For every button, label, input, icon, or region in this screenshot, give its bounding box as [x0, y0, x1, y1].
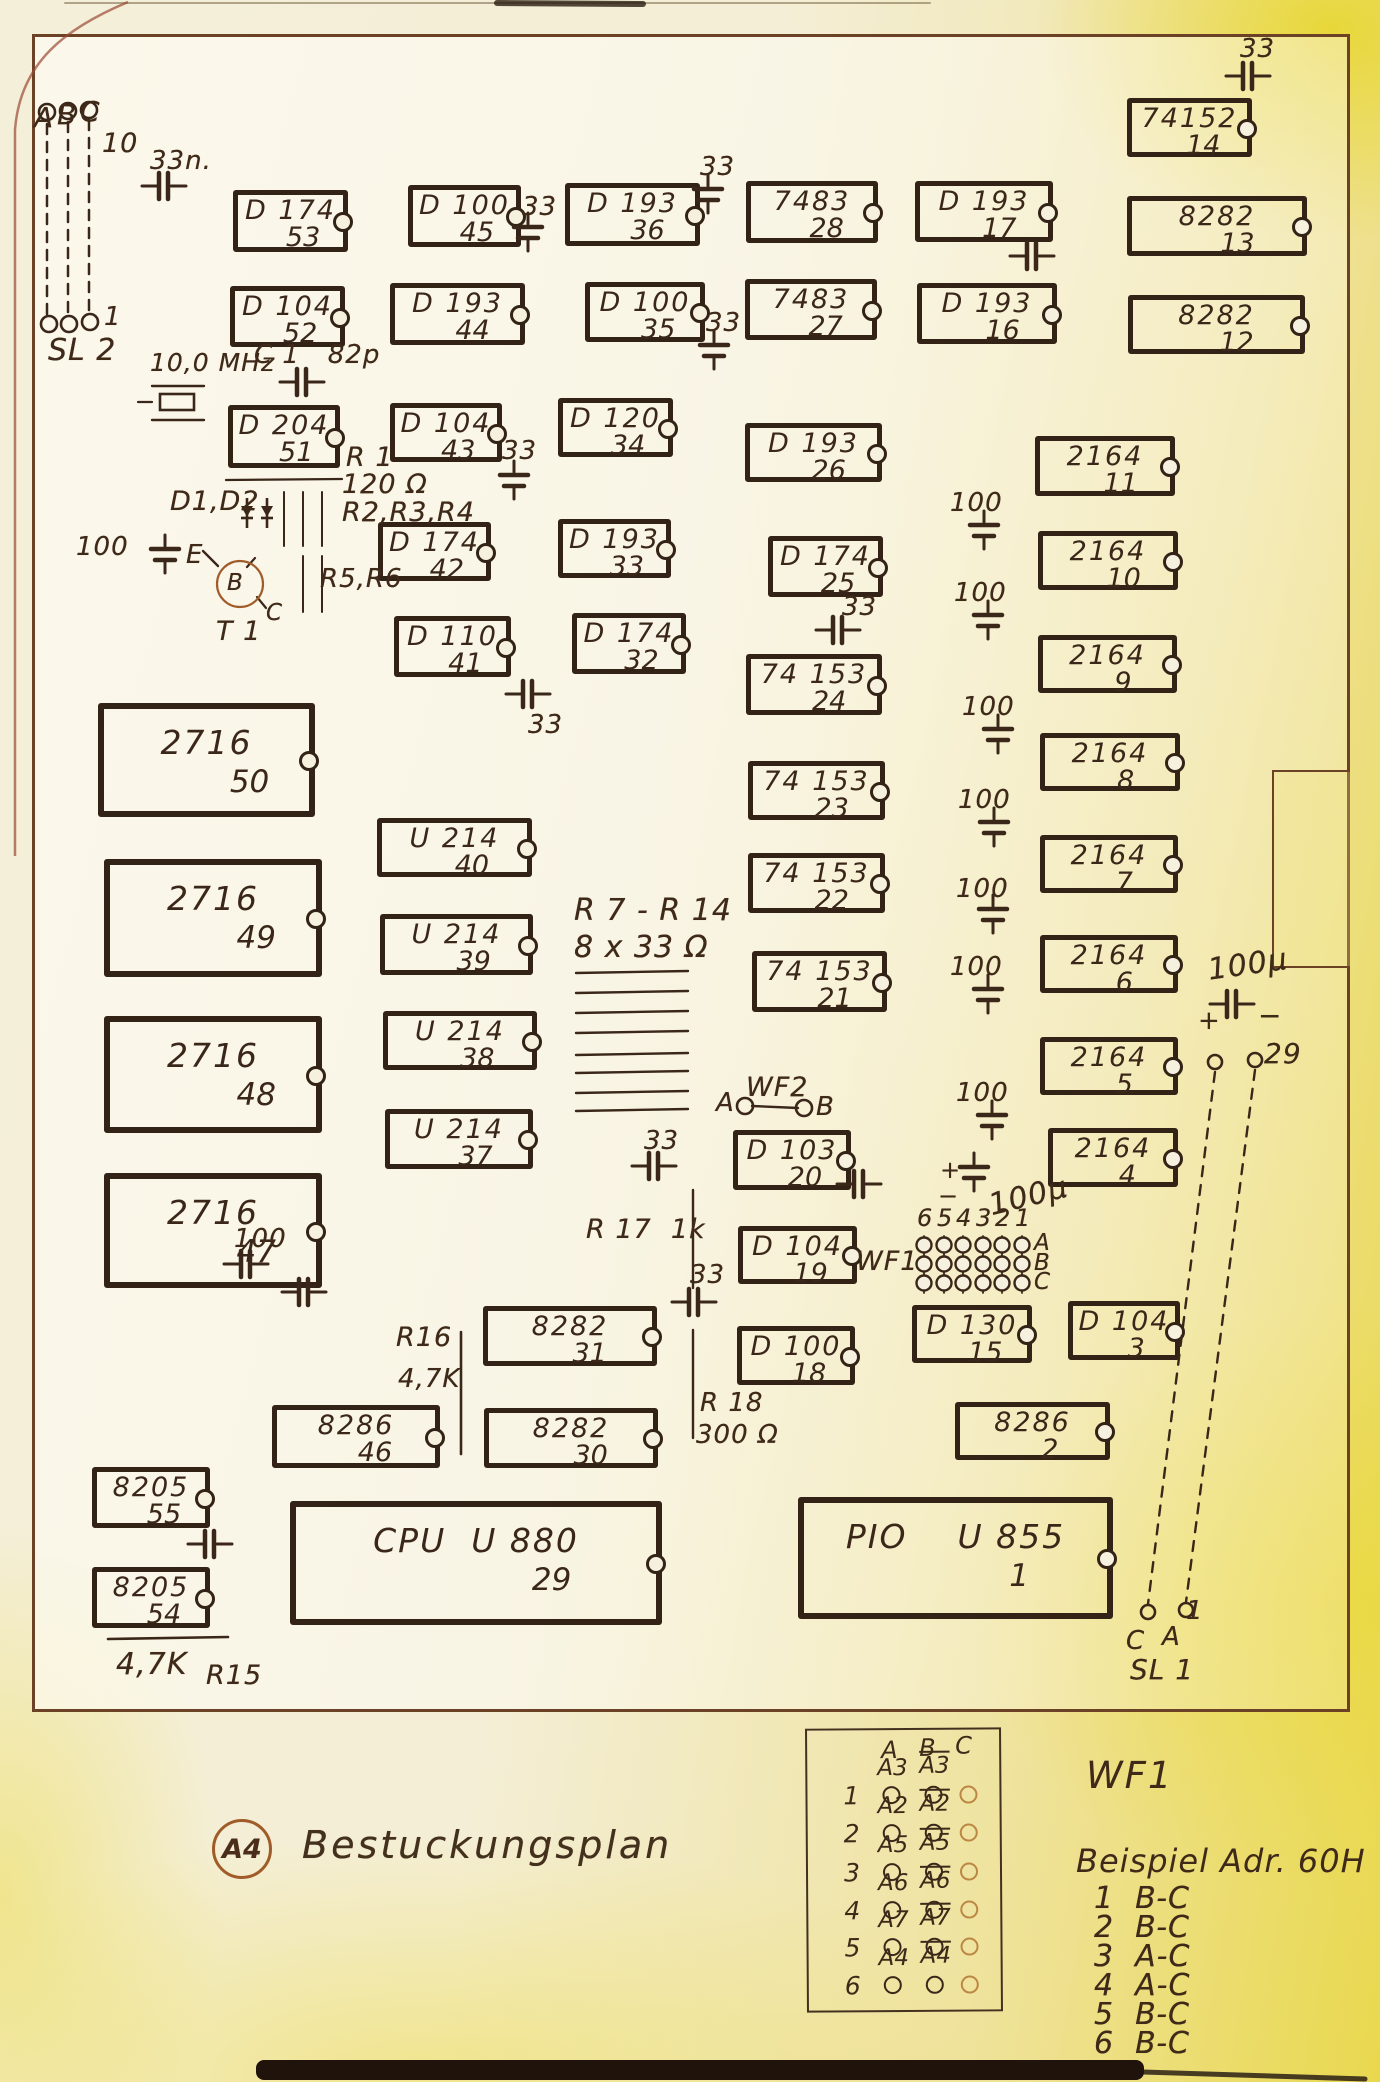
- ic-position-number: 51: [233, 439, 335, 466]
- ic-position-number: 28: [751, 215, 873, 242]
- ic-position-number: 27: [750, 313, 872, 340]
- pin1-notch-icon: [1038, 203, 1058, 223]
- pin1-notch-icon: [195, 1589, 215, 1609]
- wf1-column-digit: 6: [917, 1206, 933, 1230]
- legend-row-number: 5: [844, 1935, 860, 1960]
- ic-position-number: 9: [1043, 669, 1172, 696]
- capacitor-value-label: 100: [962, 694, 1015, 720]
- pin1-notch-icon: [872, 973, 892, 993]
- ic-2164-11: 216411: [1035, 436, 1175, 496]
- wf1-column-digit: 3: [976, 1206, 992, 1230]
- ic-type-label: 2164: [1043, 641, 1172, 671]
- pin1-notch-icon: [476, 543, 496, 563]
- pin1-notch-icon: [1165, 753, 1185, 773]
- ic-D104-52: D 10452: [230, 286, 345, 347]
- ic-position-number: 8: [1045, 767, 1175, 794]
- ic-position-number: 22: [753, 887, 880, 914]
- legend-row-number: 6: [845, 1973, 861, 1998]
- handwritten-label: 100: [76, 534, 129, 560]
- wf1-column-digit: 2: [995, 1206, 1011, 1230]
- pin1-notch-icon: [656, 540, 676, 560]
- legend-signal-label-inverted: A3: [919, 1755, 950, 1778]
- ic-8282-12: 828212: [1128, 295, 1305, 354]
- legend-signal-label-inverted: A7: [920, 1907, 951, 1930]
- legend-signal-label: A5: [878, 1834, 909, 1857]
- ic-position-number: 14: [1132, 132, 1247, 159]
- ic-position-number: 21: [757, 985, 882, 1012]
- wf1-column-digit: 4: [956, 1206, 972, 1230]
- handwritten-label: 1: [1186, 1598, 1204, 1624]
- ic-type-label: 8282: [1133, 301, 1300, 331]
- ic-2164-7: 21647: [1040, 835, 1178, 893]
- pcb-edge-notch: [1272, 770, 1350, 968]
- ic-type-label: 8282: [1132, 202, 1302, 232]
- pin1-notch-icon: [510, 305, 530, 325]
- legend-jumper-pad-icon: [960, 1900, 978, 1918]
- ic-D100-35: D 10035: [585, 282, 705, 342]
- ic-position-number: 3: [1073, 1335, 1175, 1362]
- handwritten-label: R 1: [346, 444, 394, 471]
- pin1-notch-icon: [1097, 1549, 1117, 1569]
- pin1-notch-icon: [658, 419, 678, 439]
- sheet-format-stamp: A4: [212, 1819, 272, 1879]
- handwritten-label: 1: [104, 304, 122, 330]
- ic-type-label: 2716: [104, 725, 309, 761]
- pin1-notch-icon: [868, 558, 888, 578]
- ic-7483-28: 748328: [746, 181, 878, 243]
- pin1-notch-icon: [870, 874, 890, 894]
- pin1-notch-icon: [671, 635, 691, 655]
- legend-signal-label: A7: [878, 1909, 909, 1932]
- ic-2164-5: 21645: [1040, 1037, 1178, 1095]
- pin1-notch-icon: [685, 206, 705, 226]
- ic-position-number: 4: [1053, 1162, 1173, 1189]
- handwritten-label: E: [186, 542, 203, 568]
- ic-position-number: 44: [395, 317, 520, 344]
- pin1-notch-icon: [1162, 655, 1182, 675]
- ic-position-number: 36: [570, 217, 695, 244]
- handwritten-label: R 18: [700, 1390, 763, 1416]
- sheet-format-label: A4: [222, 1834, 262, 1865]
- handwritten-label: 120 Ω: [342, 471, 428, 498]
- ic-D104-43: D 10443: [390, 403, 502, 462]
- capacitor-value-label: 33: [1240, 36, 1275, 62]
- ic-74152-14: 7415214: [1127, 98, 1252, 157]
- handwritten-label: +: [1198, 1008, 1221, 1034]
- pin1-notch-icon: [1160, 457, 1180, 477]
- pin1-notch-icon: [518, 1130, 538, 1150]
- ic-position-number: 18: [742, 1360, 850, 1387]
- ic-position-number: 2: [960, 1436, 1105, 1463]
- ic-2716-47: 271647: [104, 1173, 322, 1288]
- ic-8286-2: 82862: [955, 1402, 1110, 1460]
- handwritten-label: 29: [1264, 1040, 1302, 1068]
- ic-D104-3: D 1043: [1068, 1301, 1180, 1360]
- ic-U214-40: U 21440: [377, 818, 532, 877]
- handwritten-label: R2,R3,R4: [342, 499, 475, 526]
- handwritten-label: 8 x 33 Ω: [574, 933, 709, 963]
- legend-row-number: 4: [844, 1898, 860, 1923]
- wf1-legend-title: WF1: [1086, 1754, 1173, 1797]
- ic-position-number: 20: [738, 1164, 846, 1191]
- ic-type-label: 2716: [110, 881, 316, 917]
- handwritten-label: 4,7K: [398, 1366, 460, 1392]
- ic-type-label: 8282: [488, 1312, 652, 1342]
- handwritten-label: A: [716, 1090, 735, 1116]
- ic-position-number: 43: [395, 437, 497, 464]
- capacitor-value-label: 100: [956, 876, 1009, 902]
- pin1-notch-icon: [1163, 855, 1183, 875]
- ic-type-label: 8282: [489, 1414, 653, 1444]
- pin1-notch-icon: [643, 1429, 663, 1449]
- ic-position-number: 31: [488, 1340, 652, 1367]
- ic-8205-55: 820555: [92, 1467, 210, 1528]
- pin1-notch-icon: [1163, 1057, 1183, 1077]
- ic-D193-33: D 19333: [558, 519, 671, 578]
- ic-2716-50: 271650: [98, 703, 315, 817]
- handwritten-label: 10: [102, 130, 138, 157]
- legend-signal-label: A4: [879, 1947, 910, 1970]
- ic-type-label: D 104: [1073, 1307, 1175, 1337]
- ic-D174-53: D 17453: [233, 190, 348, 252]
- ic-position-number: 32: [577, 647, 681, 674]
- ic-type-label: 8286: [960, 1408, 1105, 1438]
- ic-2164-6: 21646: [1040, 935, 1178, 993]
- legend-jumper-pad-icon: [961, 1975, 979, 1993]
- ic-position-number: 13: [1132, 230, 1302, 257]
- legend-signal-label: A3: [877, 1757, 908, 1780]
- wf1-column-digit: 5: [937, 1206, 953, 1230]
- ic-position-number: 45: [413, 219, 516, 246]
- pin1-notch-icon: [522, 1032, 542, 1052]
- ic-D130-15: D 13015: [912, 1305, 1032, 1363]
- handwritten-label: 4,7K: [116, 1650, 187, 1680]
- ic-position-number: 48: [110, 1080, 316, 1111]
- legend-jumper-pad-icon: [959, 1785, 977, 1803]
- pin1-notch-icon: [646, 1554, 666, 1574]
- ic-position-number: 5: [1045, 1071, 1173, 1098]
- pin1-notch-icon: [863, 203, 883, 223]
- ic-74153-23: 74 15323: [748, 761, 885, 820]
- pin1-notch-icon: [1292, 217, 1312, 237]
- capacitor-value-label: 33: [842, 594, 877, 620]
- handwritten-label: C: [1126, 1628, 1145, 1654]
- ic-2164-10: 216410: [1038, 531, 1178, 590]
- pin1-notch-icon: [306, 909, 326, 929]
- ic-position-number: 19: [743, 1260, 852, 1287]
- legend-jumper-pad-icon: [926, 1976, 944, 1994]
- ic-position-number: 41: [399, 650, 506, 677]
- ic-position-number: 37: [390, 1143, 528, 1170]
- ic-position-number: 30: [489, 1442, 653, 1469]
- handwritten-label: B: [227, 572, 244, 595]
- handwritten-label: B: [816, 1094, 835, 1120]
- ic-position-number: 26: [750, 457, 877, 484]
- pin1-notch-icon: [870, 782, 890, 802]
- ic-position-number: 16: [922, 317, 1052, 344]
- handwritten-label: WF1: [856, 1248, 918, 1275]
- pin1-notch-icon: [299, 751, 319, 771]
- pin1-notch-icon: [862, 301, 882, 321]
- handwritten-label: C: [80, 98, 101, 126]
- handwritten-label: B: [57, 101, 77, 129]
- ic-position-number: 7: [1045, 869, 1173, 896]
- legend-column-header: C: [955, 1734, 972, 1758]
- beispiel-row: 6 B-C: [1094, 2029, 1190, 2059]
- ic-position-number: 29: [296, 1565, 656, 1596]
- ic-2164-8: 21648: [1040, 733, 1180, 791]
- ic-position-number: 17: [920, 215, 1048, 242]
- pin1-notch-icon: [867, 676, 887, 696]
- ic-U214-38: U 21438: [383, 1011, 537, 1070]
- ic-D174-25: D 17425: [768, 536, 883, 597]
- ic-position-number: 40: [382, 852, 527, 879]
- ic-74153-21: 74 15321: [752, 951, 887, 1012]
- scan-artifact-dark-band: [256, 2060, 1144, 2080]
- ic-type-label: 2164: [1045, 941, 1173, 971]
- ic-type-label: 2716: [110, 1038, 316, 1074]
- ic-2716-48: 271648: [104, 1016, 322, 1133]
- capacitor-value-label: 100: [234, 1226, 287, 1252]
- pin1-notch-icon: [330, 308, 350, 328]
- capacitor-value-label: 100: [958, 787, 1011, 813]
- legend-signal-label-inverted: A2: [919, 1793, 950, 1816]
- ic-position-number: 49: [110, 923, 316, 954]
- ic-D193-26: D 19326: [745, 423, 882, 482]
- pin1-notch-icon: [518, 936, 538, 956]
- pin1-notch-icon: [1163, 552, 1183, 572]
- capacitor-value-label: 100: [956, 1080, 1009, 1106]
- handwritten-label: SL 1: [1130, 1656, 1194, 1684]
- ic-2164-9: 21649: [1038, 635, 1177, 693]
- ic-D100-45: D 10045: [408, 185, 521, 247]
- pin1-notch-icon: [333, 212, 353, 232]
- ic-position-number: 15: [917, 1339, 1027, 1366]
- handwritten-label: A: [34, 104, 54, 132]
- ic-8282-31: 828231: [483, 1306, 657, 1366]
- ic-type-label: 2164: [1045, 841, 1173, 871]
- ic-position-number: 50: [104, 767, 309, 798]
- legend-signal-label-inverted: A6: [920, 1870, 951, 1893]
- ic-position-number: 11: [1040, 470, 1170, 497]
- ic-type-label: 8286: [277, 1411, 435, 1441]
- ic-74153-24: 74 15324: [746, 654, 882, 715]
- legend-signal-label-inverted: A4: [921, 1945, 952, 1968]
- ic-D193-44: D 19344: [390, 283, 525, 345]
- ic-74153-22: 74 15322: [748, 853, 885, 913]
- ic-CPUU880-29: CPU U 88029: [290, 1501, 662, 1625]
- handwritten-label: R5,R6: [320, 566, 402, 592]
- ic-PIOU855-1: PIO U 8551: [798, 1497, 1113, 1619]
- handwritten-label: C: [266, 602, 283, 625]
- capacitor-value-label: 33n.: [150, 148, 212, 174]
- ic-position-number: 46: [277, 1439, 435, 1466]
- legend-jumper-pad-icon: [960, 1937, 978, 1955]
- pin1-notch-icon: [1017, 1325, 1037, 1345]
- ic-8282-13: 828213: [1127, 196, 1307, 256]
- pin1-notch-icon: [496, 638, 516, 658]
- wf1-jumper-legend-box: ABC1A3A32A2A23A5A54A6A65A7A76A4A4: [805, 1727, 1003, 2012]
- pin1-notch-icon: [306, 1222, 326, 1242]
- pin1-notch-icon: [325, 428, 345, 448]
- pin1-notch-icon: [517, 839, 537, 859]
- ic-type-label: PIO U 855: [804, 1519, 1107, 1555]
- ic-position-number: 53: [238, 224, 343, 251]
- pin1-notch-icon: [836, 1151, 856, 1171]
- pin1-notch-icon: [1163, 1149, 1183, 1169]
- pin1-notch-icon: [1290, 316, 1310, 336]
- ic-U214-37: U 21437: [385, 1109, 533, 1169]
- ic-position-number: 24: [751, 688, 877, 715]
- handwritten-label: R 7 - R 14: [574, 896, 732, 926]
- ic-position-number: 33: [563, 553, 666, 580]
- capacitor-value-label: 100: [954, 580, 1007, 606]
- ic-D193-36: D 19336: [565, 183, 700, 246]
- ic-type-label: 2164: [1045, 1043, 1173, 1073]
- ic-type-label: CPU U 880: [296, 1523, 656, 1559]
- handwritten-label: T 1: [216, 618, 261, 645]
- handwritten-label: SL 2: [48, 336, 116, 366]
- legend-jumper-pad-icon: [960, 1823, 978, 1841]
- handwritten-label: R15: [206, 1662, 262, 1689]
- ic-D120-34: D 12034: [558, 398, 673, 457]
- scanned-component-placement-sheet: A4 Bestuckungsplan WF1 Beispiel Adr. 60H…: [0, 0, 1380, 2082]
- ic-position-number: 35: [590, 316, 700, 343]
- handwritten-label: WF2: [746, 1074, 808, 1101]
- capacitor-value-label: 100: [950, 490, 1003, 516]
- ic-position-number: 34: [563, 432, 668, 459]
- pin1-notch-icon: [195, 1489, 215, 1509]
- ic-position-number: 54: [97, 1601, 205, 1628]
- legend-signal-label-inverted: A5: [920, 1832, 951, 1855]
- ic-position-number: 10: [1043, 565, 1173, 592]
- pin1-notch-icon: [1237, 119, 1257, 139]
- pin1-notch-icon: [1095, 1422, 1115, 1442]
- ic-8205-54: 820554: [92, 1567, 210, 1628]
- capacitor-value-label: 33: [502, 438, 537, 464]
- ic-D193-16: D 19316: [917, 283, 1057, 344]
- pin1-notch-icon: [867, 444, 887, 464]
- legend-signal-label: A6: [878, 1872, 909, 1895]
- handwritten-label: A: [1162, 1624, 1181, 1650]
- ic-type-label: 2164: [1045, 739, 1175, 769]
- ic-position-number: 12: [1133, 329, 1300, 356]
- legend-row-number: 1: [843, 1783, 859, 1808]
- handwritten-label: −: [1258, 1002, 1282, 1030]
- ic-position-number: 38: [388, 1045, 532, 1072]
- capacitor-value-label: 100: [950, 954, 1003, 980]
- pin1-notch-icon: [425, 1428, 445, 1448]
- legend-jumper-pad-icon: [884, 1976, 902, 1994]
- pin1-notch-icon: [1163, 955, 1183, 975]
- ic-position-number: 23: [753, 795, 880, 822]
- pin1-notch-icon: [840, 1347, 860, 1367]
- pin1-notch-icon: [642, 1327, 662, 1347]
- legend-signal-label: A2: [877, 1795, 908, 1818]
- pin1-notch-icon: [1042, 305, 1062, 325]
- ic-7483-27: 748327: [745, 279, 877, 340]
- wf1-column-digit: 1: [1015, 1206, 1031, 1230]
- ic-2716-49: 271649: [104, 859, 322, 977]
- ic-U214-39: U 21439: [380, 914, 533, 975]
- sheet-caption: Bestuckungsplan: [302, 1826, 672, 1864]
- ic-type-label: 2164: [1053, 1134, 1173, 1164]
- capacitor-value-label: 33: [528, 712, 563, 738]
- ic-position-number: 39: [385, 948, 528, 975]
- ic-D110-41: D 11041: [394, 616, 511, 677]
- capacitor-value-label: 33: [644, 1128, 679, 1154]
- legend-row-number: 3: [844, 1860, 860, 1885]
- handwritten-label: 10,0 MHz: [150, 350, 275, 375]
- beispiel-heading: Beispiel Adr. 60H: [1076, 1842, 1366, 1880]
- ic-D100-18: D 10018: [737, 1326, 855, 1385]
- handwritten-label: R 17 1k: [586, 1216, 706, 1243]
- capacitor-value-label: 33: [700, 154, 735, 180]
- ic-8286-46: 828646: [272, 1405, 440, 1468]
- ic-8282-30: 828230: [484, 1408, 658, 1468]
- ic-position-number: 55: [97, 1501, 205, 1528]
- pin1-notch-icon: [1165, 1322, 1185, 1342]
- capacitor-value-label: 33: [522, 194, 557, 220]
- legend-row-number: 2: [844, 1821, 860, 1846]
- legend-jumper-pad-icon: [960, 1862, 978, 1880]
- ic-D104-19: D 10419: [738, 1226, 857, 1284]
- handwritten-label: 300 Ω: [696, 1422, 779, 1448]
- pin1-notch-icon: [306, 1066, 326, 1086]
- handwritten-label: +: [940, 1158, 961, 1182]
- ic-D193-17: D 19317: [915, 181, 1053, 242]
- ic-position-number: 6: [1045, 969, 1173, 996]
- ic-position-number: 1: [804, 1561, 1107, 1592]
- ic-D204-51: D 20451: [228, 405, 340, 468]
- capacitor-value-label: 33: [706, 310, 741, 336]
- ic-D103-20: D 10320: [733, 1130, 851, 1190]
- ic-D174-32: D 17432: [572, 613, 686, 674]
- ic-2164-4: 21644: [1048, 1128, 1178, 1187]
- handwritten-label: C: [1034, 1271, 1051, 1294]
- handwritten-label: R16: [396, 1324, 452, 1351]
- handwritten-label: D1,D2: [170, 488, 260, 515]
- capacitor-value-label: 33: [690, 1262, 725, 1288]
